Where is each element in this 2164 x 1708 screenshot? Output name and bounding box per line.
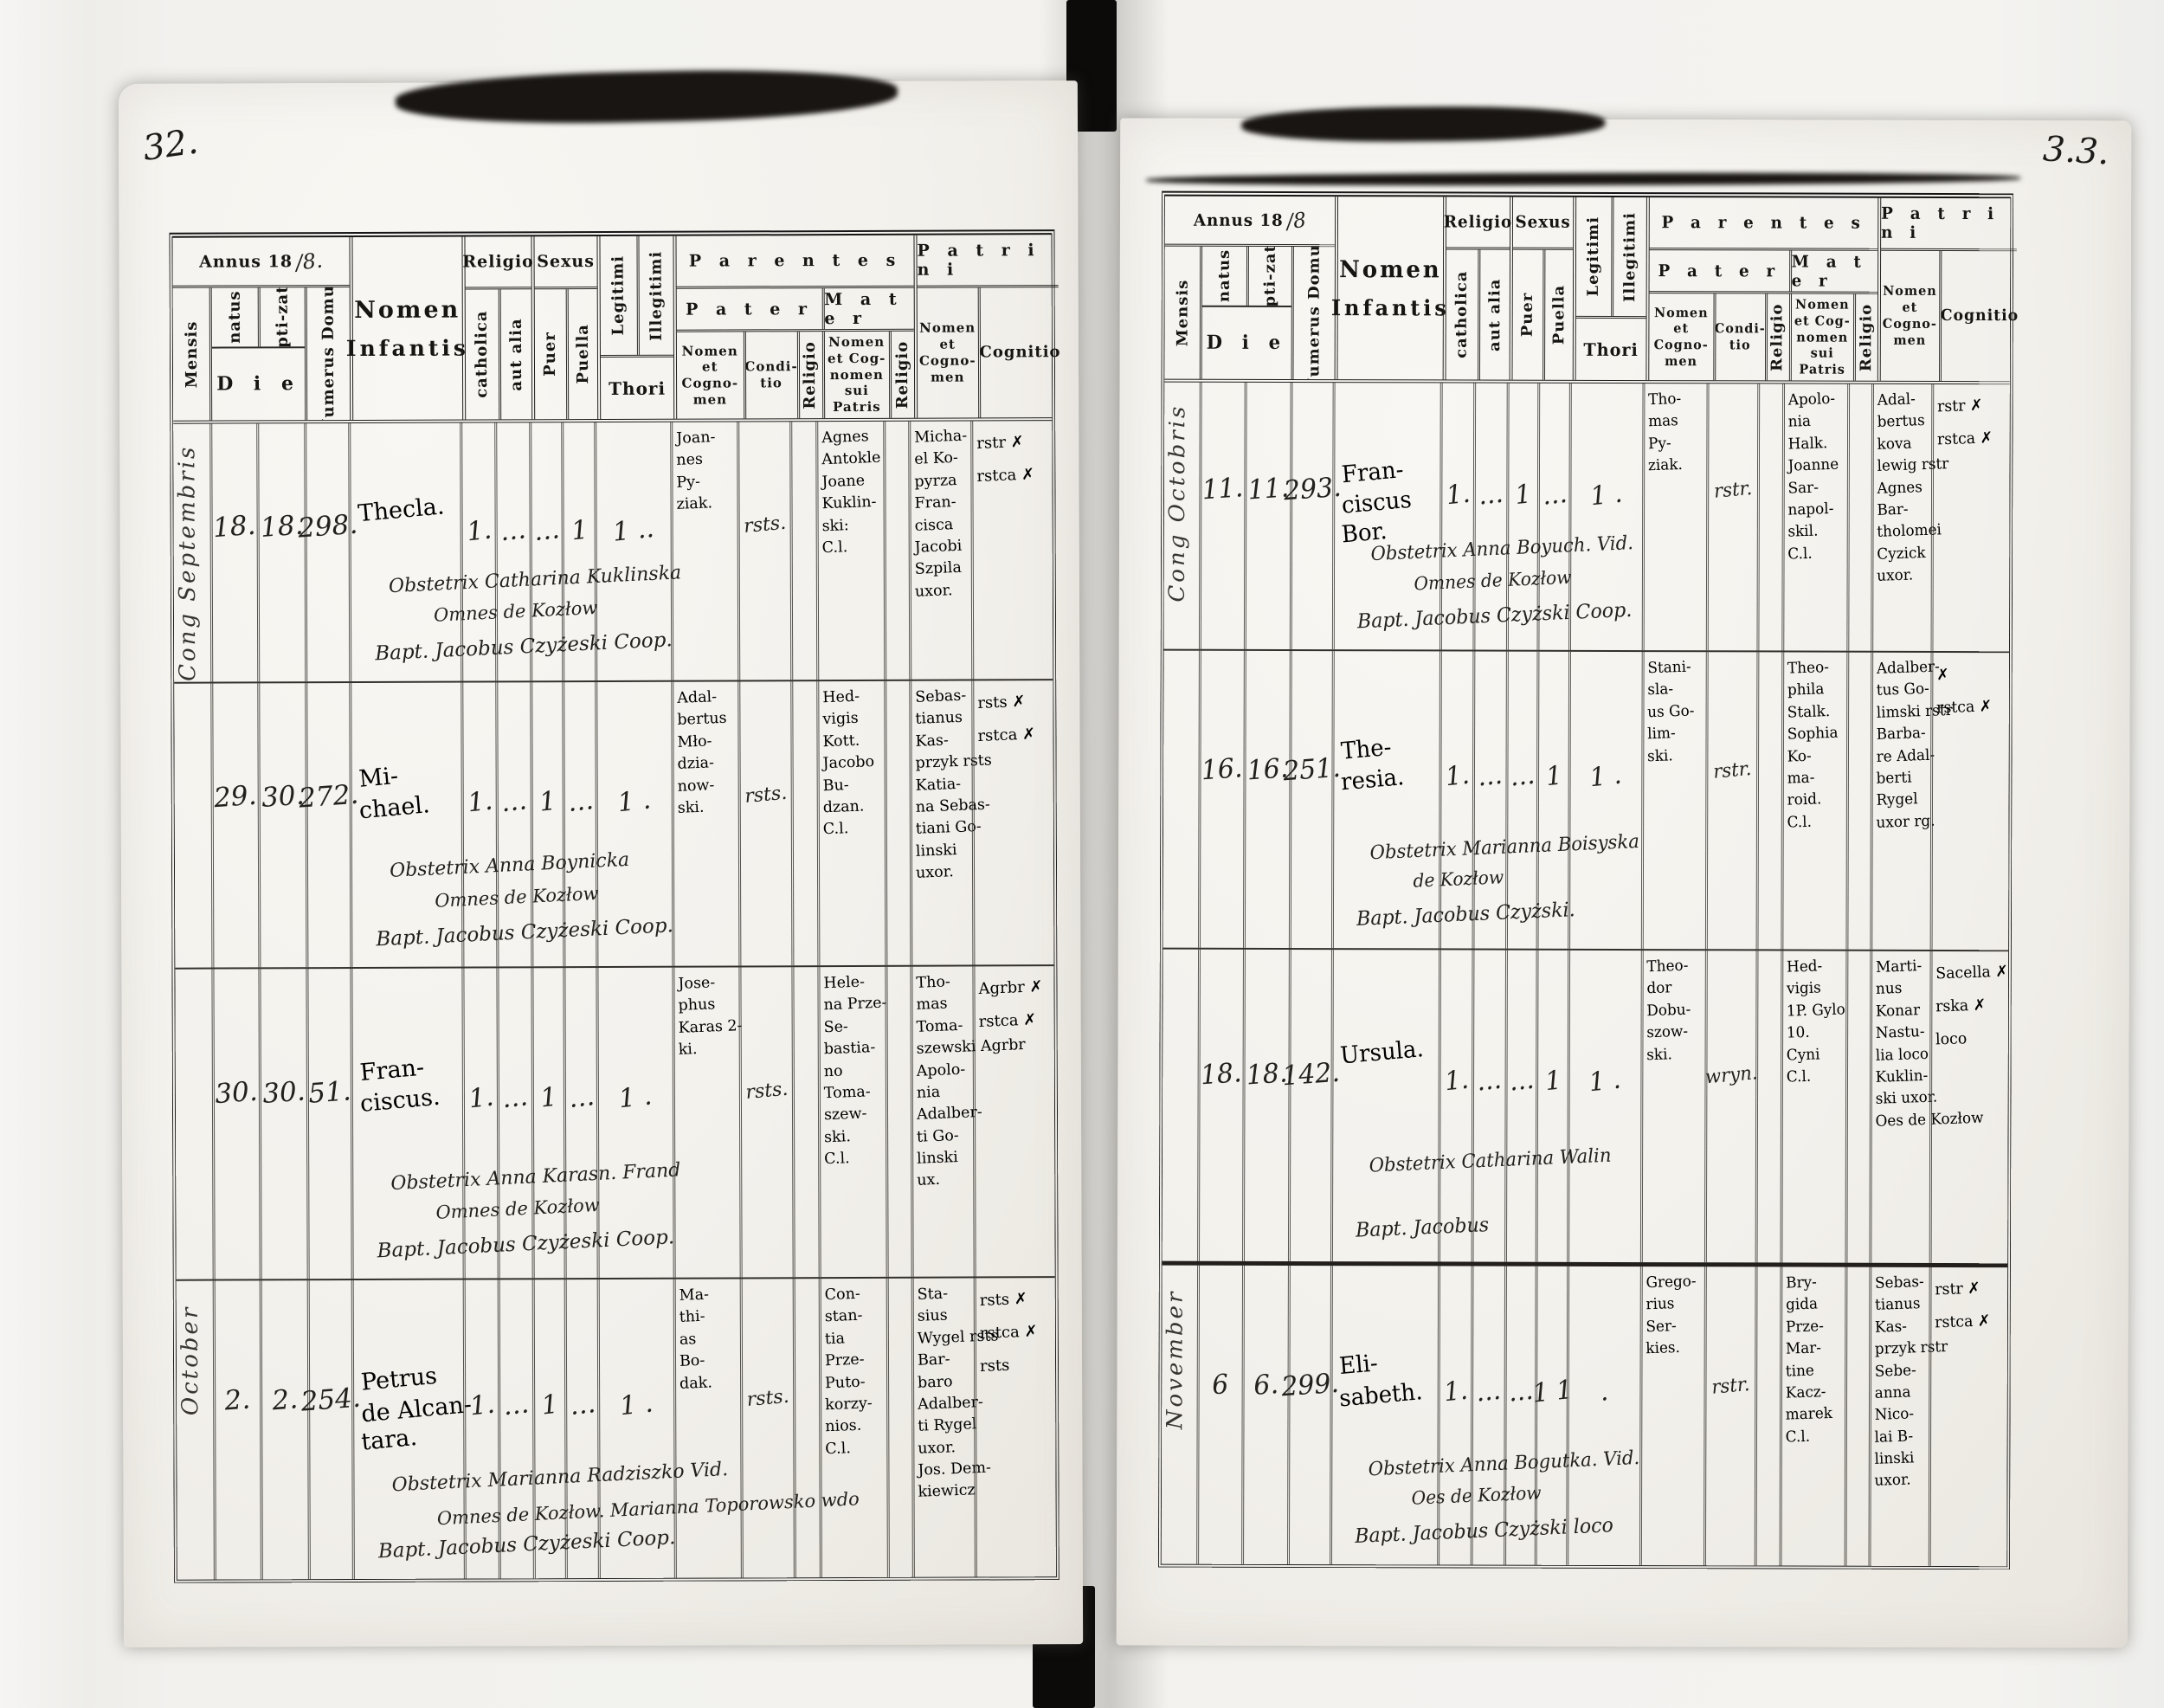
handwritten-godparents-line: Micha- <box>914 425 969 449</box>
entry-cell-natus: 18. <box>1197 950 1243 1261</box>
handwritten-father-name: Grego-riusSer-kies. <box>1646 1272 1703 1360</box>
entry-cell-bapt: 18. <box>256 423 305 681</box>
handwritten-mother-name: Theo-philaStalk.SophiaKo-ma-roid.C.l. <box>1787 657 1845 833</box>
entry-cell-cognitio: rsts ✗rstca ✗rsts <box>973 1278 1055 1576</box>
handwritten-mother-name-line: bastia- <box>823 1037 883 1061</box>
handwritten-father-name-line: thi- <box>679 1305 738 1330</box>
annus-label: Annus 18 <box>199 252 293 271</box>
annus-header: Annus 18 /8. <box>172 237 349 288</box>
handwritten-mother-name-line: ski. <box>824 1125 884 1149</box>
register-entry-row: 30.30.51.Fran-ciscus.1.…1…1 .Jose-phusKa… <box>175 966 1054 1281</box>
handwritten-infant-name-line: sabeth. <box>1338 1376 1424 1414</box>
handwritten-conditio: rstr. <box>1711 1374 1751 1399</box>
col-header-numerus-domus: Numerus Domus <box>1291 247 1335 379</box>
annus-handwritten-year: /8. <box>295 248 325 274</box>
handwritten-mother-name: Hele-na Prze-Se-bastia-noToma-szew-ski.C… <box>824 972 884 1170</box>
handwritten-mother-name-line: C.l. <box>825 1436 885 1460</box>
handwritten-mother-name-line: 1P. Gylo <box>1787 999 1845 1023</box>
handwritten-mother-name-line: Hele- <box>823 971 883 996</box>
handwritten-cognitio-marks: Agrbr ✗rstca ✗ <box>978 971 1053 1037</box>
handwritten-mother-name-line: tine <box>1786 1359 1844 1383</box>
handwritten-godparents-line: sius <box>918 1305 972 1329</box>
handwritten-godparents: Sebas-tianusKas-przyk rstrSebe-annaNico-… <box>1875 1273 1928 1492</box>
handwritten-godparents-line: pyrza <box>914 469 969 493</box>
page-number-right: 3.3. <box>2042 129 2110 172</box>
col-header-puer: Puer <box>1512 250 1542 380</box>
register-entry-row: November66.299.Eli-sabeth.1.……1 1.Grego-… <box>1162 1266 2007 1567</box>
handwritten-cognitio-marks-line: rstca ✗ <box>1935 689 2007 725</box>
handwritten-mother-name-line: Prze- <box>825 1349 885 1373</box>
entry-cell-cognitio: rstr ✗rstca ✗ <box>970 421 1053 679</box>
handwritten-tally-aut: … <box>499 785 529 818</box>
patrini-header: P a t r i n i <box>1881 198 2017 251</box>
col-header-conditio: Condi- tio <box>1713 293 1765 380</box>
handwritten-godparents-line: tianus <box>915 707 969 732</box>
handwritten-godparents: Tho-masToma-szewski AgrbrApolo-niaAdalbe… <box>917 972 971 1192</box>
handwritten-mother-name-line: Apolo- <box>1788 388 1846 412</box>
register-entry-row: 29.30.272.Mi-chael.1.…1…1 .Adal-bertusMł… <box>174 680 1053 970</box>
annus-header: Annus 18 /8 <box>1165 197 1335 248</box>
handwritten-father-name-line: Karas 2- <box>678 1015 737 1040</box>
handwritten-mother-name-line: nia <box>1788 410 1846 435</box>
handwritten-natus-day: 11. <box>1201 472 1245 506</box>
handwritten-godparents-line: Barba- <box>1877 723 1929 746</box>
handwritten-cognitio-marks: rstr ✗rstca ✗ <box>976 426 1051 492</box>
col-header-puer: Puer <box>535 289 566 419</box>
col-header-aut-alia: aut alia <box>499 289 532 419</box>
handwritten-father-name-line: Stani- <box>1647 656 1705 680</box>
handwritten-father-name-line: now- <box>677 774 737 798</box>
handwritten-cognitio-marks-line: rsts <box>979 1347 1054 1383</box>
handwritten-mother-name-line: na Prze- <box>823 993 883 1017</box>
register-table-right: Annus 18 /8 Mensis natus bapti-zatus <box>1158 191 2013 1570</box>
handwritten-infant-name: Fran-ciscus. <box>360 1055 460 1117</box>
handwritten-mother-name-line: Sar- <box>1787 476 1845 500</box>
handwritten-father-name-line: us Go- <box>1646 700 1704 725</box>
handwritten-father-name-line: Adal- <box>676 686 736 710</box>
col-header-patrini-nomen: Nomen et Cogno- men <box>1881 251 1939 381</box>
entry-cell-cognitio: rstr ✗rstca ✗ <box>1929 1267 2008 1566</box>
entry-cell-pnomen: Stani-sla-us Go-lim-ski. <box>1640 652 1705 949</box>
handwritten-godparents-line: Rygel <box>1877 789 1929 812</box>
handwritten-cognitio-marks-line: rstca ✗ <box>978 1003 1053 1039</box>
register-entry-row: 18.18.142.Ursula.1.……11 .Theo-dorDobu-sz… <box>1163 950 2008 1268</box>
handwritten-godparents-line: Jacobi <box>915 535 969 559</box>
handwritten-godparents-line: Kuklin- <box>1876 1066 1929 1089</box>
handwritten-godparents-line: Adalber- <box>918 1392 972 1416</box>
entry-cell-mensis: Cong Septembris <box>173 424 210 682</box>
entry-cell-cond: rstr. <box>1704 1266 1755 1565</box>
register-entry-row: 16.16.251.The-resia.1.……11 .Stani-sla-us… <box>1163 651 2009 952</box>
col-header-puella: Puella <box>566 289 598 419</box>
entry-cell-mrel <box>886 1279 912 1577</box>
handwritten-mother-name: Con-stan-tiaPrze-Puto-korzy-nios.C.l. <box>825 1284 885 1460</box>
handwritten-infant-name-line: Ursula. <box>1339 1034 1425 1071</box>
handwritten-cognitio-marks: rstr ✗rstca ✗ <box>1935 1273 2006 1338</box>
handwritten-father-name-line: kies. <box>1646 1337 1704 1361</box>
handwritten-godparents-line: bertus <box>1877 410 1930 434</box>
entry-cell-patnomen: Tho-masToma-szewski AgrbrApolo-niaAdalbe… <box>911 967 974 1277</box>
handwritten-infant-name: Petrusde Alcan-tara. <box>361 1363 461 1455</box>
handwritten-father-name-line: Joan- <box>675 426 735 450</box>
entry-cell-mnomen: Apolo-niaHalk.JoanneSar-napol-skil.C.l. <box>1782 383 1847 650</box>
handwritten-cognitio-marks-line: rsts ✗ <box>979 1282 1054 1318</box>
entry-cell-cognitio: ✗rstca ✗ <box>1929 653 2009 950</box>
handwritten-infant-name-line: Petrus <box>360 1360 439 1397</box>
handwritten-tally-cath: 1. <box>1443 1065 1470 1098</box>
entry-cell-natus: 18. <box>209 423 258 681</box>
handwritten-godparents-line: Katia- <box>916 773 970 797</box>
handwritten-conditio: rstr. <box>1713 478 1753 503</box>
handwritten-infant-name: The-resia. <box>1341 734 1438 795</box>
entry-cell-patnomen: Sebas-tianusKas-przyk rstrSebe-annaNico-… <box>1869 1267 1929 1566</box>
register-entry-row: Cong Septembris18.18.298.Thecla.1.……11 .… <box>173 421 1053 684</box>
entry-cell-cond: rsts. <box>737 422 791 680</box>
entry-cell-cond: rsts. <box>737 681 792 965</box>
handwritten-conditio: rsts. <box>745 1079 789 1104</box>
handwritten-godparents-line: berti <box>1877 767 1929 790</box>
handwritten-mother-name-line: ski: <box>821 513 881 538</box>
handwritten-godparents-line: lewig rstr <box>1877 454 1930 478</box>
handwritten-mother-name: Bry-gidaPrze-Mar-tineKacz-marekC.l. <box>1786 1272 1843 1447</box>
handwritten-cognitio-marks: Sacella ✗rska ✗loco <box>1935 957 2006 1055</box>
handwritten-cognitio-marks-line: rstca ✗ <box>1934 1304 2006 1339</box>
entry-cell-nomen: Eli-sabeth. <box>1330 1266 1439 1564</box>
entry-cell-mnomen: Bry-gidaPrze-Mar-tineKacz-marekC.l. <box>1780 1266 1845 1565</box>
religio-header: Religio <box>465 236 531 289</box>
mater-header: M a t e r <box>1789 251 1878 292</box>
handwritten-godparents-line: kova <box>1877 433 1930 456</box>
handwritten-godparents: Sta-siusWygel rstsBar-baroAdalber-ti Ryg… <box>918 1284 972 1504</box>
handwritten-godparents-line: lia loco <box>1876 1043 1929 1067</box>
handwritten-godparents-line: cisca <box>915 513 969 538</box>
handwritten-father-name-line: Theo- <box>1646 955 1704 979</box>
handwritten-tally-cath: 1. <box>1445 479 1472 512</box>
handwritten-mother-name-line: Kott. <box>822 729 882 753</box>
handwritten-godparents-line: tus Go- <box>1877 679 1929 702</box>
handwritten-mother-name-line: Cyni <box>1787 1043 1845 1067</box>
handwritten-infant-name-line: Thecla. <box>357 492 447 530</box>
col-header-nomen-infantis: Nomen Infantis <box>1335 197 1444 379</box>
entry-cell-mensis: October <box>177 1281 214 1580</box>
handwritten-godparents-line: przyk rsts <box>915 751 969 776</box>
handwritten-father-name-line: ziak. <box>676 492 736 516</box>
col-header-conditio: Condi- tio <box>743 332 796 418</box>
right-page-scan: 3.3. Annus 18 /8 Mensis natus <box>1117 118 2132 1647</box>
col-header-legitimi: Legitimi <box>1576 197 1612 316</box>
handwritten-godparents-line: limski rstr <box>1877 701 1929 725</box>
handwritten-mother-name-line: gida <box>1786 1293 1844 1318</box>
col-header-mater-religio: Religio <box>888 332 914 418</box>
handwritten-cognitio-marks-line: loco <box>1935 1021 2006 1056</box>
handwritten-mother-name-line: Jacobo <box>822 751 882 776</box>
handwritten-tally-aut: … <box>501 1082 531 1115</box>
handwritten-omnes-line: de Kozłow <box>1413 867 1504 891</box>
handwritten-natus-day: 18. <box>1200 1057 1243 1091</box>
col-header-baptizatus: bapti-zatus <box>1246 247 1291 306</box>
entry-cell-mensis: Cong Octobris <box>1164 383 1200 649</box>
handwritten-mother-name: Hed-vigisKott.JacoboBu-dzan.C.l. <box>822 686 882 841</box>
handwritten-mother-name-line: stan- <box>825 1305 885 1329</box>
handwritten-father-name-line: rius <box>1646 1292 1704 1317</box>
page-number-left: 32. <box>140 121 201 169</box>
handwritten-infant-name: Eli-sabeth. <box>1340 1350 1437 1410</box>
handwritten-godparents-line: kiewicz <box>918 1480 972 1505</box>
handwritten-tally-puer: … <box>1509 760 1536 793</box>
handwritten-tally-puella: 1 <box>570 515 589 547</box>
handwritten-godparents-line: nus <box>1876 977 1929 1001</box>
col-header-mensis: Mensis <box>173 288 210 421</box>
handwritten-mother-name-line: Toma- <box>824 1081 884 1105</box>
col-header-mater-nomen: Nomen et Cog- nomen sui Patris <box>1789 293 1853 380</box>
col-header-thori: Thori <box>1576 316 1646 380</box>
handwritten-tally-aut: … <box>1475 1376 1503 1408</box>
handwritten-father-name-line: Grego- <box>1646 1271 1704 1295</box>
entry-cell-cond: rstr. <box>1705 652 1757 949</box>
handwritten-tally-puer: 1 <box>538 786 557 818</box>
handwritten-godparents-line: mas <box>916 993 970 1017</box>
handwritten-father-name-line: phus <box>678 994 737 1018</box>
handwritten-conditio: rsts. <box>743 512 787 538</box>
handwritten-mother-name-line: dzan. <box>822 796 882 820</box>
handwritten-infant-name-line: tara. <box>360 1422 418 1458</box>
handwritten-godparents-line: Wygel rsts <box>918 1326 972 1350</box>
handwritten-father-name-line: nes <box>675 448 735 473</box>
handwritten-mother-name-line: Sophia <box>1787 723 1845 747</box>
entry-cell-cond: rsts. <box>738 967 793 1277</box>
entry-cell-prel <box>793 1279 820 1577</box>
annus-label: Annus 18 <box>1194 210 1284 229</box>
entry-cell-natus: 6 <box>1196 1266 1242 1564</box>
handwritten-tally-thori: 1 . <box>616 784 653 818</box>
handwritten-father-name-line: ski. <box>1646 744 1704 769</box>
col-header-pater-religio: Religio <box>796 332 822 418</box>
handwritten-father-name-line: mas <box>1647 409 1705 434</box>
handwritten-godparents-line: Oes de Kozłow <box>1876 1109 1929 1132</box>
entry-cell-mnomen: AgnesAntokleJoaneKuklin-ski:C.l. <box>815 422 883 680</box>
handwritten-tally-thori: 1 .. <box>611 513 655 548</box>
handwritten-godparents-line: Szpila <box>915 558 969 582</box>
handwritten-mother-name-line: Mar- <box>1786 1337 1844 1362</box>
entry-cell-cond: rstr. <box>1706 383 1758 650</box>
handwritten-tally-cath: 1. <box>467 1082 495 1115</box>
handwritten-mother-name-line: Hed- <box>822 686 882 710</box>
entry-cell-mrel <box>1846 384 1871 651</box>
handwritten-tally-puella: 1 <box>1544 760 1563 792</box>
handwritten-infant-name: Mi-chael. <box>359 762 460 823</box>
handwritten-cognitio-marks: rsts ✗rstca ✗ <box>977 686 1052 751</box>
handwritten-tally-puella: … <box>566 785 596 818</box>
handwritten-mother-name-line: Halk. <box>1788 432 1846 456</box>
handwritten-godparents: Adal-bertuskovalewig rstrAgnesBar-tholom… <box>1877 390 1930 588</box>
handwritten-cognitio-marks-line: rska ✗ <box>1935 988 2006 1023</box>
handwritten-tally-puer: … <box>532 514 562 547</box>
entry-cell-cath: 1. <box>463 1279 499 1578</box>
handwritten-cognitio-marks-line: rstca ✗ <box>977 718 1053 753</box>
handwritten-tally-thori: 1 . <box>1589 479 1624 512</box>
handwritten-father-name-line: szow- <box>1646 1021 1704 1045</box>
handwritten-father-name-line: dzia- <box>677 751 737 776</box>
handwritten-godparents-line: Jos. Dem- <box>918 1458 972 1482</box>
entry-cell-prel <box>791 681 818 965</box>
handwritten-mother-name-line: C.l. <box>1787 542 1845 566</box>
col-header-patrini-nomen: Nomen et Cogno- men <box>918 287 978 417</box>
handwritten-mother-name-line: C.l. <box>821 536 881 560</box>
handwritten-tally-cath: 1. <box>465 515 493 548</box>
entry-cell-bapt: 2. <box>260 1280 308 1579</box>
page-edge-stain-right <box>1241 106 1605 143</box>
handwritten-godparents-line: tiani Go- <box>916 817 970 841</box>
page-edge-stain <box>395 67 898 127</box>
handwritten-infant-name-line: chael. <box>358 790 432 826</box>
col-header-pater-nomen: Nomen et Cogno- men <box>1649 293 1713 380</box>
col-header-catholica: catholica <box>1446 249 1478 379</box>
entry-cell-bapt: 11. <box>1244 383 1290 649</box>
handwritten-godparents-line: linski <box>917 1146 971 1170</box>
handwritten-baptizatus-day: 30. <box>261 1076 306 1111</box>
handwritten-tally-thori: 1 . <box>1588 760 1623 794</box>
entry-cell-patnomen: Adal-bertuskovalewig rstrAgnesBar-tholom… <box>1871 384 1932 651</box>
handwritten-father-name-line: dak. <box>679 1371 738 1395</box>
handwritten-natus-day: 18. <box>212 510 257 545</box>
handwritten-godparents-line: Toma- <box>917 1015 971 1039</box>
handwritten-mother-name-line: Prze- <box>1786 1315 1844 1339</box>
entry-cell-bapt: 30. <box>258 683 306 967</box>
handwritten-mother-name-line: napol- <box>1787 498 1845 522</box>
handwritten-mother-name-line: Antokle <box>821 448 881 472</box>
entry-cell-patnomen: Sebas-tianusKas-przyk rstsKatia-na Sebas… <box>910 681 973 965</box>
handwritten-godparents-line: Nastu- <box>1876 1022 1929 1045</box>
entry-cell-patnomen: Adalber-tus Go-limski rstrBarba-re Adal-… <box>1871 653 1931 950</box>
table-header-left: Annus 18 /8. Mensis natus bapti-zatus <box>172 235 1052 424</box>
pater-header: P a t e r <box>1650 251 1789 292</box>
entry-cell-cognitio: Sacella ✗rska ✗loco <box>1929 951 2009 1263</box>
entry-cell-mrel <box>883 422 910 680</box>
entry-cell-patnomen: Sta-siusWygel rstsBar-baroAdalber-ti Ryg… <box>911 1279 975 1577</box>
handwritten-mother-name-line: szew- <box>824 1103 884 1127</box>
handwritten-godparents-line: Kas- <box>1875 1316 1928 1339</box>
handwritten-infant-name-line: The- <box>1340 732 1393 767</box>
handwritten-godparents-line: anna <box>1875 1382 1928 1405</box>
entry-cell-natus: 16. <box>1198 651 1244 948</box>
handwritten-mother-name-line: C.l. <box>824 1147 884 1171</box>
handwritten-mother-name-line: Theo- <box>1787 656 1845 680</box>
handwritten-tally-cath: 1. <box>1444 760 1471 793</box>
handwritten-godparents-line: linski <box>916 839 970 863</box>
handwritten-mother-name-line: Ko- <box>1787 744 1845 769</box>
entry-cell-puella: 1 <box>1536 951 1568 1262</box>
handwritten-godparents-line: uxor. <box>915 579 969 603</box>
handwritten-conditio: wryn. <box>1704 1062 1758 1088</box>
entry-cell-pnomen: Adal-bertusMło-dzia-now-ski. <box>671 681 739 965</box>
handwritten-godparents-line: Sebas- <box>1875 1272 1928 1295</box>
col-header-die: D i e <box>1202 307 1291 377</box>
handwritten-month: November <box>1163 1289 1188 1429</box>
handwritten-month: Cong Septembris <box>174 444 201 680</box>
handwritten-mother-name-line: phila <box>1787 679 1845 703</box>
handwritten-father-name-line: lim- <box>1646 722 1704 746</box>
handwritten-tally-aut: … <box>1476 1065 1504 1098</box>
col-header-puella: Puella <box>1542 250 1573 380</box>
handwritten-cognitio-marks-line: rsts ✗ <box>976 685 1052 720</box>
handwritten-infant-name-line: ciscus. <box>359 1082 441 1119</box>
handwritten-tally-thori: 1 . <box>619 1388 655 1421</box>
handwritten-father-name-line: ski. <box>677 796 737 820</box>
handwritten-mother-name-line: vigis <box>1787 977 1845 1002</box>
handwritten-godparents-line: re Adal- <box>1877 744 1929 768</box>
handwritten-godparents-line: tholomei <box>1877 520 1929 544</box>
entry-cell-numerus: 272. <box>305 683 351 967</box>
entry-cell-natus: 30. <box>211 969 260 1279</box>
handwritten-father-name-line: ski. <box>1646 1043 1704 1067</box>
handwritten-tally-puer: … <box>1508 1065 1536 1098</box>
handwritten-godparents-line: baro <box>918 1370 972 1395</box>
entry-cell-numerus: 298. <box>304 423 350 681</box>
col-header-die: D i e <box>212 348 305 418</box>
handwritten-father-name: Stani-sla-us Go-lim-ski. <box>1647 657 1704 767</box>
handwritten-godparents-line: ski uxor. <box>1876 1087 1929 1111</box>
handwritten-mother-name-line: skil. <box>1787 520 1845 545</box>
handwritten-mother-name-line: Hed- <box>1787 955 1845 979</box>
handwritten-tally-cath: 1. <box>466 785 493 818</box>
handwritten-cognitio-marks: rsts ✗rstca ✗rsts <box>979 1283 1053 1382</box>
col-header-pater-religio: Religio <box>1765 293 1790 380</box>
entry-cell-patnomen: Marti-nusKonarNastu-lia locoKuklin-ski u… <box>1870 951 1930 1263</box>
handwritten-godparents-line: tianus <box>1875 1293 1928 1317</box>
handwritten-father-name-line: as <box>679 1327 738 1351</box>
handwritten-mother-name-line: marek <box>1786 1403 1844 1428</box>
entry-cell-natus: 2. <box>212 1280 261 1579</box>
col-header-mater-religio: Religio <box>1853 294 1878 381</box>
handwritten-father-name-line: dor <box>1646 976 1704 1001</box>
left-page-scan: 32. Annus 18 /8. Mensis natus <box>119 81 1083 1647</box>
col-header-numerus-domus: Numerus Domus <box>305 287 351 420</box>
entry-cell-mnomen: Con-stan-tiaPrze-Puto-korzy-nios.C.l. <box>819 1279 887 1577</box>
handwritten-baptizatus-day: 2. <box>271 1383 299 1416</box>
entry-cell-mensis <box>174 684 211 968</box>
register-table-left: Annus 18 /8. Mensis natus bapti-zatus <box>169 229 1059 1583</box>
handwritten-infant-name-line: Eli- <box>1338 1348 1379 1382</box>
handwritten-godparents-line: uxor. <box>1877 564 1929 588</box>
handwritten-mother-name-line: Kacz- <box>1786 1381 1844 1405</box>
handwritten-godparents-line: Sebas- <box>915 685 969 709</box>
handwritten-natus-day: 6 <box>1211 1369 1229 1401</box>
handwritten-mother-name-line: roid. <box>1787 789 1845 813</box>
handwritten-godparents-line: Fran- <box>914 492 969 516</box>
handwritten-godparents-line: Kas- <box>915 729 969 753</box>
entry-cell-patnomen: Micha-el Ko-pyrzaFran-ciscaJacobiSzpilau… <box>909 422 971 680</box>
handwritten-father-name-line: Mło- <box>677 730 737 754</box>
handwritten-mother-name-line: Se- <box>823 1015 883 1039</box>
handwritten-godparents-line: Sebe- <box>1875 1359 1928 1383</box>
handwritten-mother-name-line: Joanne <box>1787 454 1845 479</box>
entry-cell-cognitio: rstr ✗rstca ✗ <box>1930 384 2009 651</box>
entry-cell-numerus: 299. <box>1287 1266 1331 1564</box>
entry-cell-cognitio: rsts ✗rstca ✗ <box>971 680 1053 964</box>
handwritten-mother-name-line: Joane <box>821 469 881 493</box>
col-header-thori: Thori <box>601 355 673 419</box>
entries-right: Cong Octobris11.11.293.Fran-ciscusBor.1.… <box>1162 383 2010 1567</box>
register-entry-row: Cong Octobris11.11.293.Fran-ciscusBor.1.… <box>1164 383 2010 654</box>
handwritten-tally-thori: 1 . <box>1588 1065 1622 1099</box>
entry-cell-pnomen: Grego-riusSer-kies. <box>1639 1266 1704 1565</box>
entry-cell-bapt: 6. <box>1241 1266 1287 1564</box>
entry-cell-mrel <box>1844 1267 1870 1566</box>
entry-cell-mrel <box>885 967 911 1277</box>
entry-cell-aut: … <box>496 968 531 1278</box>
entry-cell-pnomen: Tho-masPy-ziak. <box>1641 383 1706 650</box>
handwritten-godparents-line: uxor. <box>1874 1469 1927 1492</box>
